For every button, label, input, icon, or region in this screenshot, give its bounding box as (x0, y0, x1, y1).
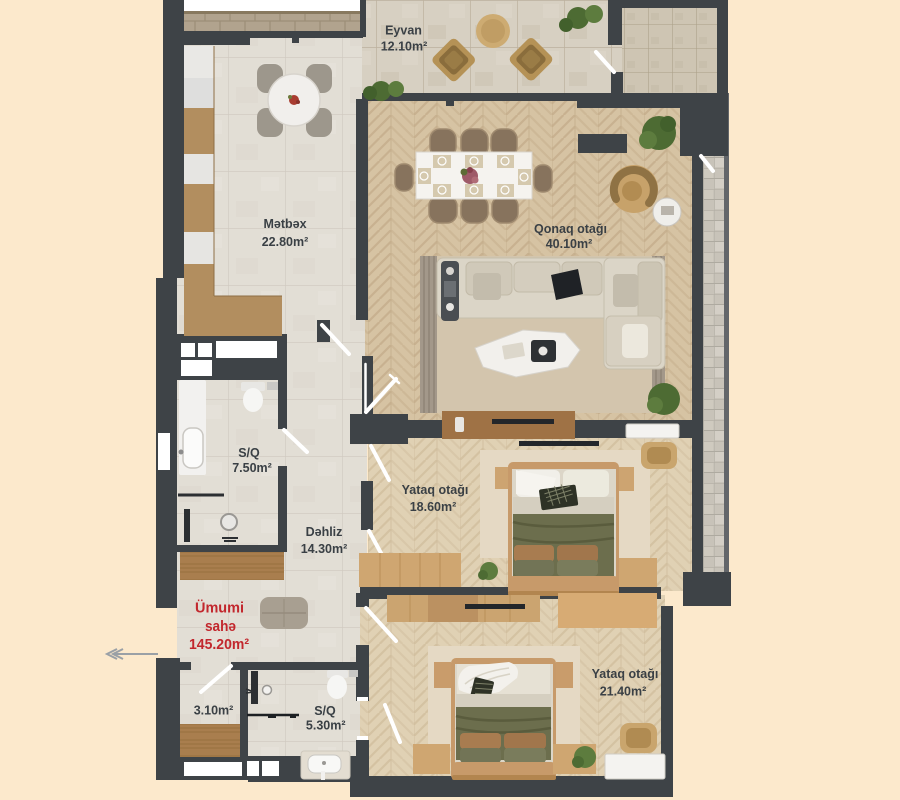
svg-text:5.30m²: 5.30m² (306, 719, 346, 733)
svg-text:14.30m²: 14.30m² (301, 542, 348, 556)
svg-text:40.10m²: 40.10m² (546, 237, 593, 251)
svg-text:sahə: sahə (205, 618, 236, 635)
svg-text:Mətbəx: Mətbəx (263, 217, 306, 231)
svg-text:21.40m²: 21.40m² (600, 685, 647, 699)
svg-text:S/Q: S/Q (314, 704, 336, 718)
svg-text:Ümumi: Ümumi (195, 600, 244, 617)
svg-text:Dəhliz: Dəhliz (306, 525, 343, 539)
svg-text:12.10m²: 12.10m² (381, 40, 428, 54)
svg-text:3.10m²: 3.10m² (194, 704, 234, 718)
svg-text:18.60m²: 18.60m² (410, 500, 457, 514)
svg-text:Qonaq otağı: Qonaq otağı (534, 222, 607, 236)
svg-text:22.80m²: 22.80m² (262, 235, 309, 249)
svg-text:Eyvan: Eyvan (385, 24, 422, 38)
svg-text:S/Q: S/Q (238, 446, 260, 460)
svg-text:Yataq otağı: Yataq otağı (592, 667, 659, 681)
svg-text:Yataq otağı: Yataq otağı (402, 483, 469, 497)
svg-text:145.20m²: 145.20m² (189, 636, 249, 653)
svg-text:7.50m²: 7.50m² (232, 461, 272, 475)
